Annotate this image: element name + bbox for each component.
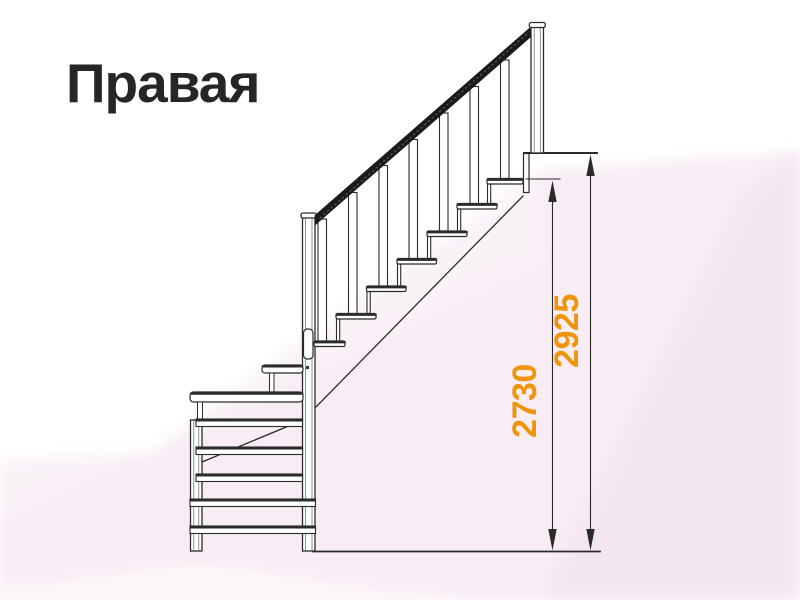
screw-dot [306, 366, 309, 369]
handrail [315, 27, 531, 225]
upper-flight-treads [314, 179, 523, 347]
newel-cap [301, 213, 317, 218]
upper-flight-balusters [318, 60, 509, 341]
winder-baluster-small-2 [198, 402, 203, 419]
arrow-up-2925 [586, 155, 594, 177]
lower-railing [190, 365, 316, 534]
lower-handrail-end [304, 329, 314, 359]
top-post-cap [529, 23, 545, 28]
arrow-up-2730 [548, 181, 556, 203]
arrow-down-2925 [586, 529, 594, 551]
arrow-down-2730 [548, 529, 556, 551]
upper-flight-stringer [314, 196, 523, 409]
dimension-label-2925: 2925 [548, 294, 586, 368]
winder-baluster-small [270, 373, 275, 392]
dimension-label-2730: 2730 [506, 364, 544, 438]
diagram-canvas: 2730 2925 Правая [0, 0, 800, 600]
landing-fascia [524, 154, 530, 193]
page-title: Правая [66, 56, 259, 111]
top-post [529, 23, 545, 154]
